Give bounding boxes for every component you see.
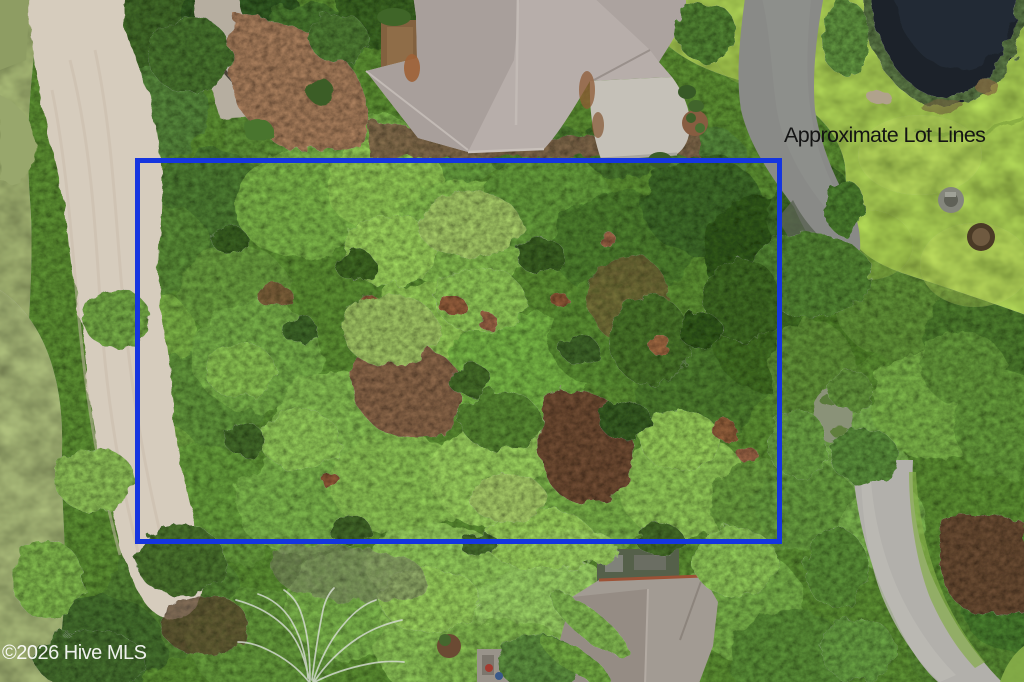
svg-text:©2026 Hive MLS: ©2026 Hive MLS	[2, 642, 147, 664]
svg-text:Approximate Lot Lines: Approximate Lot Lines	[784, 123, 985, 147]
